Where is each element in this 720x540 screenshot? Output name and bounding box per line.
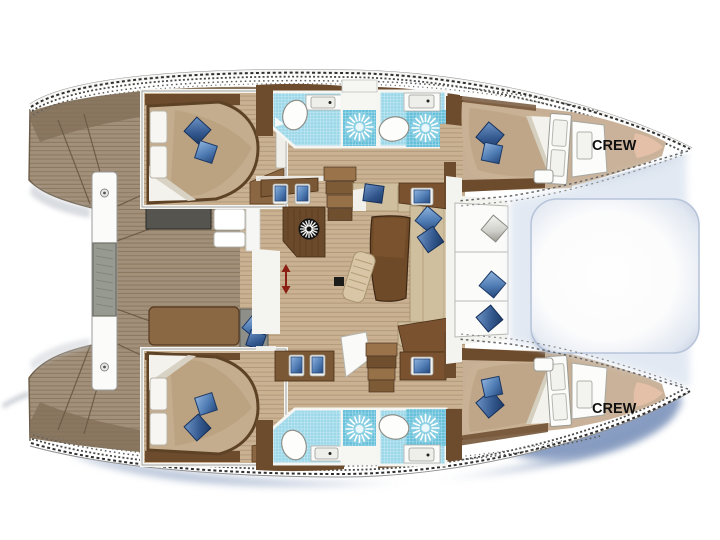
svg-text:CREW: CREW <box>592 401 637 417</box>
svg-text:CREW: CREW <box>592 138 637 154</box>
